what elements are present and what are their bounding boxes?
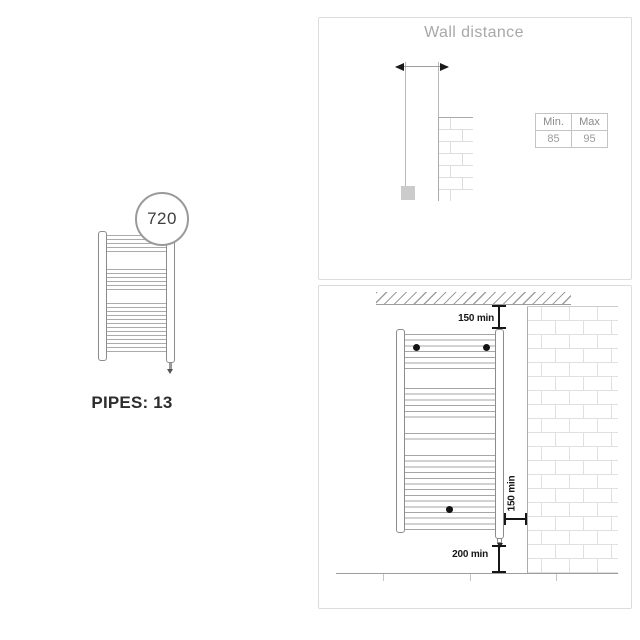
brick-wall xyxy=(527,306,618,574)
pipes-count-label: PIPES: 13 xyxy=(56,393,208,413)
top-dimension-tick xyxy=(492,327,506,329)
table-value-row: 85 95 xyxy=(536,131,608,148)
dimension-arrow-left-icon xyxy=(395,63,404,71)
page: 720 PIPES: 13 Wall distance Min. Max xyxy=(0,0,640,640)
floor-tick xyxy=(470,574,471,581)
min-value: 85 xyxy=(536,131,572,148)
wall-extension-line xyxy=(438,62,439,117)
mini-brick-wall xyxy=(438,117,473,201)
radiator-left-tube xyxy=(98,231,107,361)
radiator-right-tube xyxy=(495,329,504,539)
floor-tick xyxy=(556,574,557,581)
side-dimension-tick xyxy=(504,513,506,525)
min-header: Min. xyxy=(536,114,572,131)
side-dimension-tick xyxy=(525,513,527,525)
bottom-clearance-label: 200 min xyxy=(446,549,488,560)
side-dimension-line xyxy=(505,518,527,520)
mounting-bracket-dot xyxy=(413,344,420,351)
wall-distance-panel xyxy=(318,17,632,280)
floor-tick xyxy=(383,574,384,581)
height-dimension-badge: 720 xyxy=(135,192,189,246)
radiator-rung-group xyxy=(405,388,495,418)
radiator-rung-group xyxy=(405,455,495,530)
radiator-rung-group xyxy=(107,303,166,352)
side-clearance-label: 150 min xyxy=(507,474,518,514)
radiator-right-tube xyxy=(166,239,175,363)
radiator-valve-tip-icon xyxy=(167,369,173,374)
radiator-rung-group xyxy=(107,269,166,290)
top-clearance-label: 150 min xyxy=(452,313,494,324)
panel-title: Wall distance xyxy=(318,24,630,42)
bottom-dimension-tick xyxy=(492,545,506,547)
floor-line xyxy=(336,573,618,574)
bottom-dimension-line xyxy=(498,546,500,573)
min-max-table: Min. Max 85 95 xyxy=(535,113,608,148)
max-value: 95 xyxy=(572,131,608,148)
mounting-bracket-dot xyxy=(446,506,453,513)
table-header-row: Min. Max xyxy=(536,114,608,131)
dimension-arrow-right-icon xyxy=(440,63,449,71)
radiator-rung-group xyxy=(405,334,495,370)
height-value: 720 xyxy=(147,209,177,229)
radiator-rung-group xyxy=(405,433,495,440)
top-dimension-tick xyxy=(492,305,506,307)
radiator-left-tube xyxy=(396,329,405,533)
mounting-bracket-dot xyxy=(483,344,490,351)
top-dimension-line xyxy=(498,306,500,329)
radiator-pipe-end xyxy=(401,186,415,200)
ceiling-line xyxy=(376,304,571,305)
max-header: Max xyxy=(572,114,608,131)
radiator-extension-line xyxy=(405,62,406,188)
